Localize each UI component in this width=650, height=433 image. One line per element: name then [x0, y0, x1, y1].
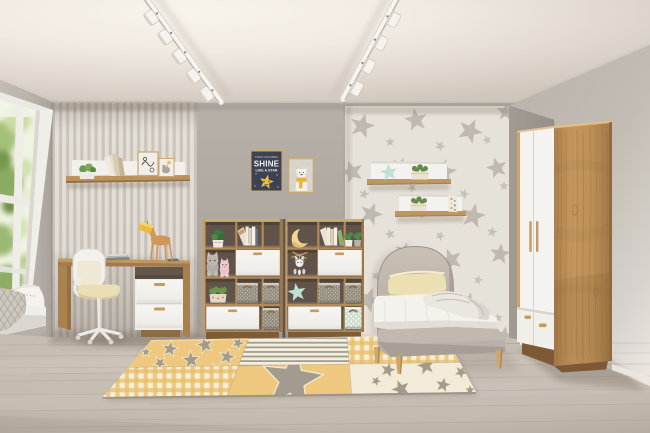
svg-text:TODAY I'M GONNA: TODAY I'M GONNA: [255, 155, 278, 159]
svg-text:SHINE: SHINE: [254, 160, 280, 169]
svg-text:LIKE A STAR: LIKE A STAR: [255, 169, 277, 173]
